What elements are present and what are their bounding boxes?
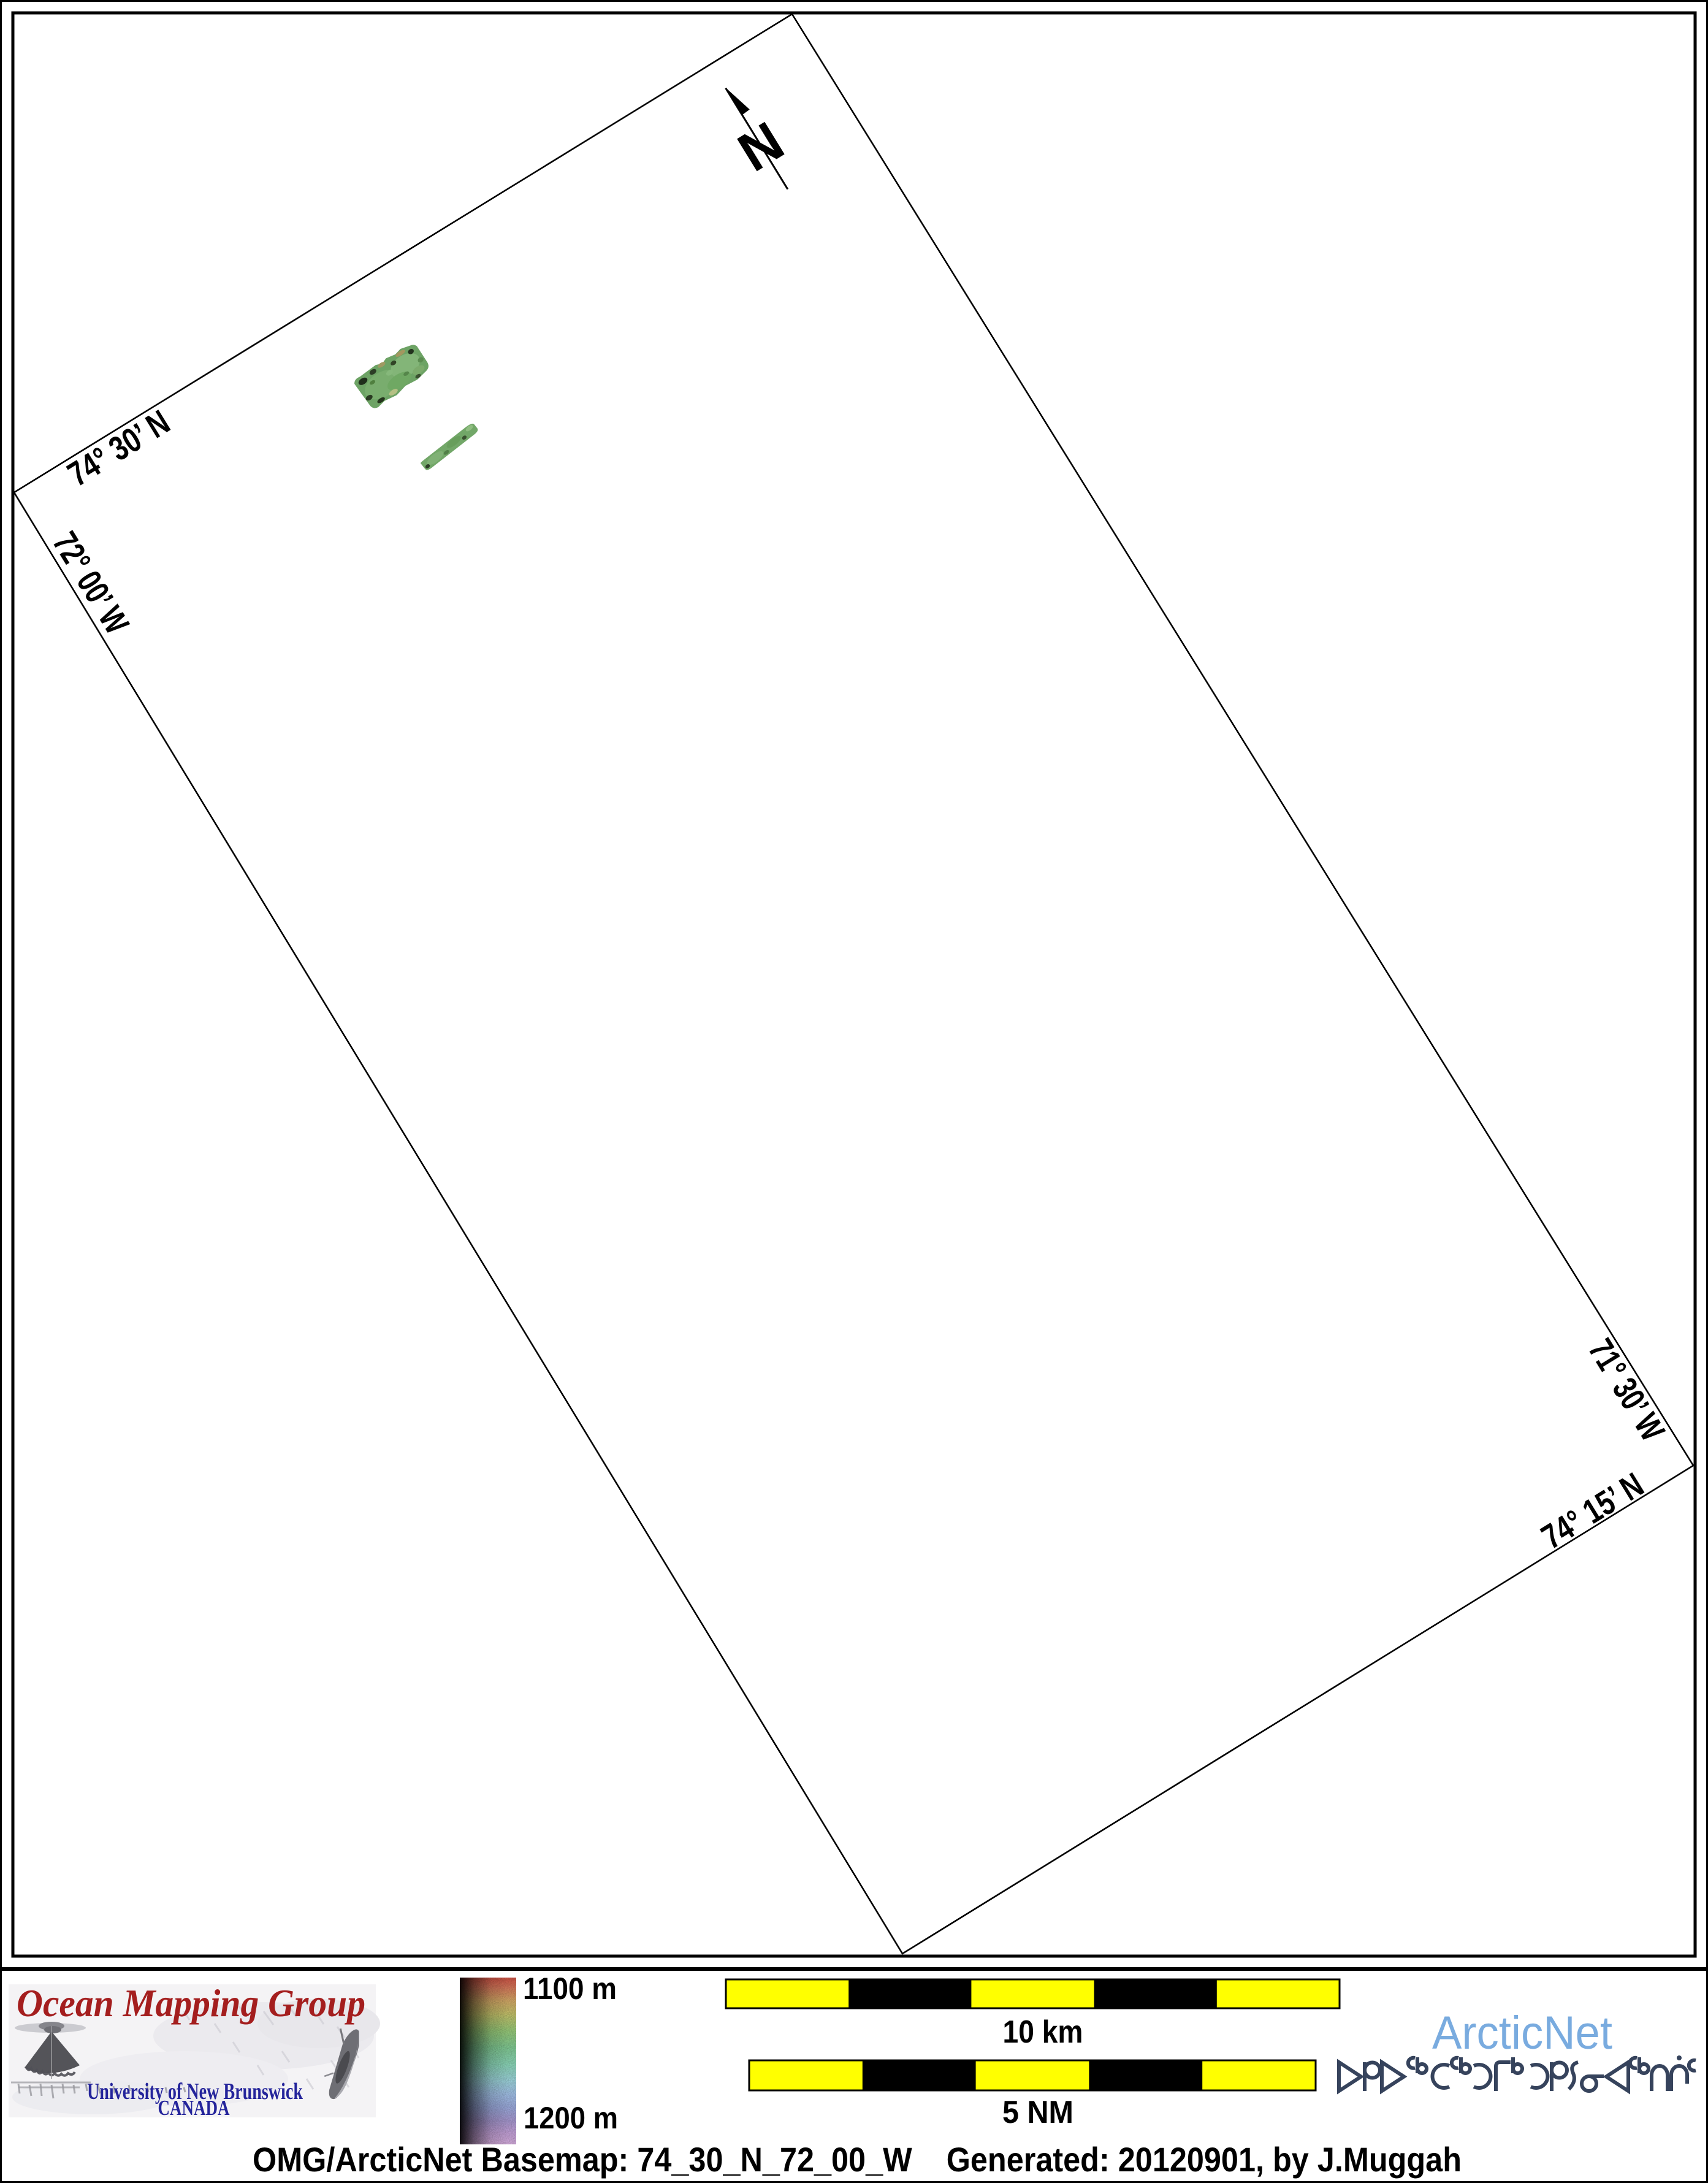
svg-text:Ocean Mapping Group: Ocean Mapping Group [17, 1981, 365, 2025]
svg-text:ArcticNet: ArcticNet [1432, 2007, 1612, 2059]
svg-text:CANADA: CANADA [158, 2096, 231, 2120]
svg-text:OMG/ArcticNet Basemap: 74_30_N: OMG/ArcticNet Basemap: 74_30_N_72_00_W G… [253, 2140, 1462, 2179]
svg-text:1200 m: 1200 m [524, 2101, 618, 2135]
svg-text:10 km: 10 km [1003, 2014, 1083, 2050]
svg-text:1100 m: 1100 m [523, 1971, 617, 2006]
svg-text:5 NM: 5 NM [1002, 2095, 1073, 2130]
